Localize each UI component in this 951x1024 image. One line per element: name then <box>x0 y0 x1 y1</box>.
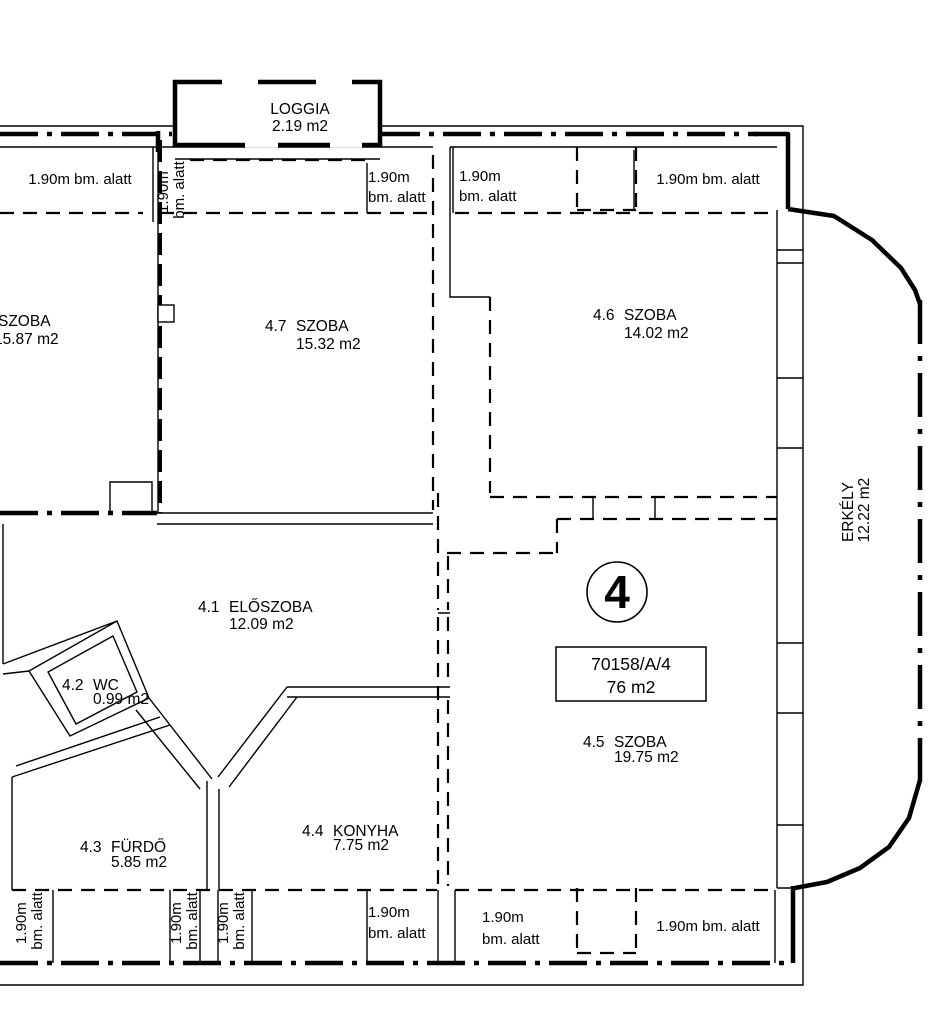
floorplan-page: LOGGIA 2.19 m2 1.90m bm. alatt 1.90m bm.… <box>0 0 951 1024</box>
unit-lot-id: 70158/A/4 <box>591 654 671 674</box>
height-note-bottom-mid-left: 1.90m bm. alatt <box>368 904 426 942</box>
loggia-area: 2.19 m2 <box>272 118 328 135</box>
room-area-4-2: 0.99 m2 <box>93 691 149 708</box>
room-area-4-4: 7.75 m2 <box>333 837 389 854</box>
height-note-bottom-v2: 1.90m bm. alatt <box>168 891 201 949</box>
room-area-left-partial: 15.87 m2 <box>0 331 59 348</box>
unit-badge-number: 4 <box>604 566 630 618</box>
height-note-bottom-v3: 1.90m bm. alatt <box>215 891 248 949</box>
room-area-4-6: 14.02 m2 <box>624 325 689 342</box>
room-area-4-7: 15.32 m2 <box>296 336 361 353</box>
height-note-top-left: 1.90m bm. alatt <box>28 171 132 188</box>
balcony-outline <box>158 131 920 963</box>
height-note-top-right: 1.90m bm. alatt <box>656 171 760 188</box>
loggia-name: LOGGIA <box>270 101 330 118</box>
room-label-4-6: 4.6 SZOBA <box>593 307 677 324</box>
room-label-left-partial: SZOBA <box>0 313 51 330</box>
room-area-4-3: 5.85 m2 <box>111 854 167 871</box>
room-label-4-1: 4.1 ELŐSZOBA <box>198 599 313 616</box>
wall-pilaster <box>158 305 174 322</box>
room-label-4-7: 4.7 SZOBA <box>265 318 349 335</box>
room-area-4-5: 19.75 m2 <box>614 749 679 766</box>
height-note-top-mid-right: 1.90m bm. alatt <box>459 168 517 205</box>
unit-total-area: 76 m2 <box>607 677 656 697</box>
height-note-bottom-v1: 1.90m bm. alatt <box>13 891 46 949</box>
height-note-top-mid-left: 1.90m bm. alatt <box>368 169 426 206</box>
height-note-top-wall-vertical: 1.90m bm. alatt <box>155 160 188 218</box>
height-note-bottom-mid-right: 1.90m bm. alatt <box>482 909 540 948</box>
erkely-label: ERKÉLY 12.22 m2 <box>840 478 873 543</box>
height-note-bottom-right: 1.90m bm. alatt <box>656 918 760 935</box>
floorplan-svg: LOGGIA 2.19 m2 1.90m bm. alatt 1.90m bm.… <box>0 0 951 1024</box>
room-area-4-1: 12.09 m2 <box>229 616 294 633</box>
